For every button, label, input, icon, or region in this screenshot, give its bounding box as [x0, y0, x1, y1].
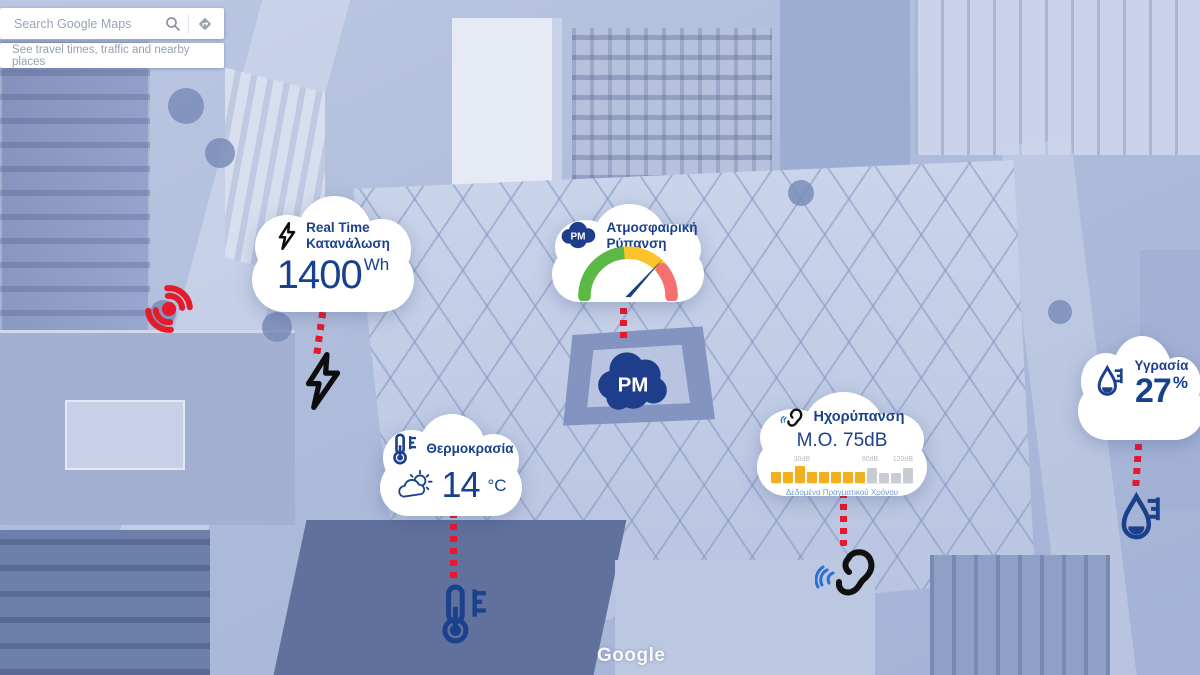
energy-value: 1400 [277, 253, 362, 297]
humidity-unit: % [1173, 373, 1188, 392]
signal-icon [133, 276, 205, 347]
noise-scale-label: 120dB [893, 456, 913, 463]
map-tree [262, 312, 292, 342]
map-screenshot: See travel times, traffic and nearby pla… [0, 0, 1200, 675]
energy-title-line2: Κατανάλωση [306, 236, 390, 251]
noise-bars [771, 465, 913, 484]
map-rooftop-structure [65, 400, 185, 470]
noise-bar [903, 468, 913, 483]
connector-temperature [450, 512, 457, 582]
noise-bar [795, 466, 805, 483]
pm-marker-label: PM [618, 373, 649, 396]
lightning-bolt-icon [300, 352, 346, 415]
pollution-gauge [569, 241, 687, 306]
pm-marker: PM [592, 344, 674, 421]
cloud-humidity: Υγρασία 27% [1078, 336, 1200, 440]
noise-chart: 30dB 80dB 120dB Δεδομένα Πραγματικού Χρό… [771, 456, 913, 497]
ear-icon [815, 543, 881, 606]
search-icon[interactable] [165, 16, 181, 32]
temperature-title: Θερμοκρασία [426, 441, 513, 457]
humidity-value: 27 [1135, 372, 1171, 410]
map-building [780, 0, 910, 175]
cloud-temperature: Θερμοκρασία 14°C [380, 414, 522, 516]
connector-noise [840, 492, 847, 546]
energy-unit: Wh [364, 255, 390, 274]
search-hint[interactable]: See travel times, traffic and nearby pla… [0, 43, 224, 68]
search-input[interactable] [12, 16, 165, 32]
noise-bar [819, 472, 829, 483]
noise-title: Ηχορύπανση [813, 409, 904, 426]
map-tree [788, 180, 814, 206]
humidity-droplet-icon [1116, 490, 1168, 553]
google-watermark: Google [597, 645, 665, 667]
humidity-droplet-icon [1094, 364, 1128, 401]
search-divider [188, 14, 189, 34]
lightning-bolt-icon [276, 222, 298, 250]
noise-bar [771, 472, 781, 483]
map-building [915, 0, 1200, 155]
sun-cloud-icon [395, 468, 435, 502]
cloud-air: PM Ατμοσφαιρική Ρύπανση [552, 204, 704, 302]
map-tree [1048, 300, 1072, 324]
noise-bar [831, 472, 841, 483]
cloud-noise: Ηχορύπανση Μ.Ο. 75dB 30dB 80dB 120dB Δεδ… [757, 392, 927, 496]
noise-bar [783, 472, 793, 483]
thermometer-icon [388, 432, 418, 465]
noise-bar [855, 472, 865, 483]
noise-bar [879, 473, 889, 483]
air-title-line1: Ατμοσφαιρική [606, 220, 697, 235]
noise-caption: Δεδομένα Πραγματικού Χρόνου [771, 488, 913, 497]
directions-icon[interactable] [196, 15, 214, 33]
search-hint-text: See travel times, traffic and nearby pla… [12, 44, 224, 68]
noise-bar [867, 468, 877, 483]
temperature-value: 14 [441, 467, 479, 503]
noise-bar [891, 473, 901, 483]
cloud-energy: Real Time Κατανάλωση 1400Wh [252, 196, 414, 312]
search-bar[interactable] [0, 8, 224, 39]
energy-title-line1: Real Time [306, 220, 370, 235]
map-tree [205, 138, 235, 168]
ear-icon [779, 406, 805, 429]
map-building [572, 28, 772, 180]
noise-scale-label: 80dB [862, 456, 878, 463]
noise-bar [807, 472, 817, 483]
noise-average: Μ.Ο. 75dB [757, 430, 927, 452]
map-building [0, 40, 150, 340]
map-building [930, 555, 1110, 675]
map-building [0, 530, 210, 675]
noise-bar [843, 472, 853, 483]
thermometer-icon [432, 582, 490, 649]
map-building [452, 18, 562, 186]
temperature-unit: °C [487, 477, 506, 494]
map-tree [168, 88, 204, 124]
noise-scale: 30dB 80dB 120dB [771, 456, 913, 465]
noise-scale-label: 30dB [794, 456, 810, 463]
